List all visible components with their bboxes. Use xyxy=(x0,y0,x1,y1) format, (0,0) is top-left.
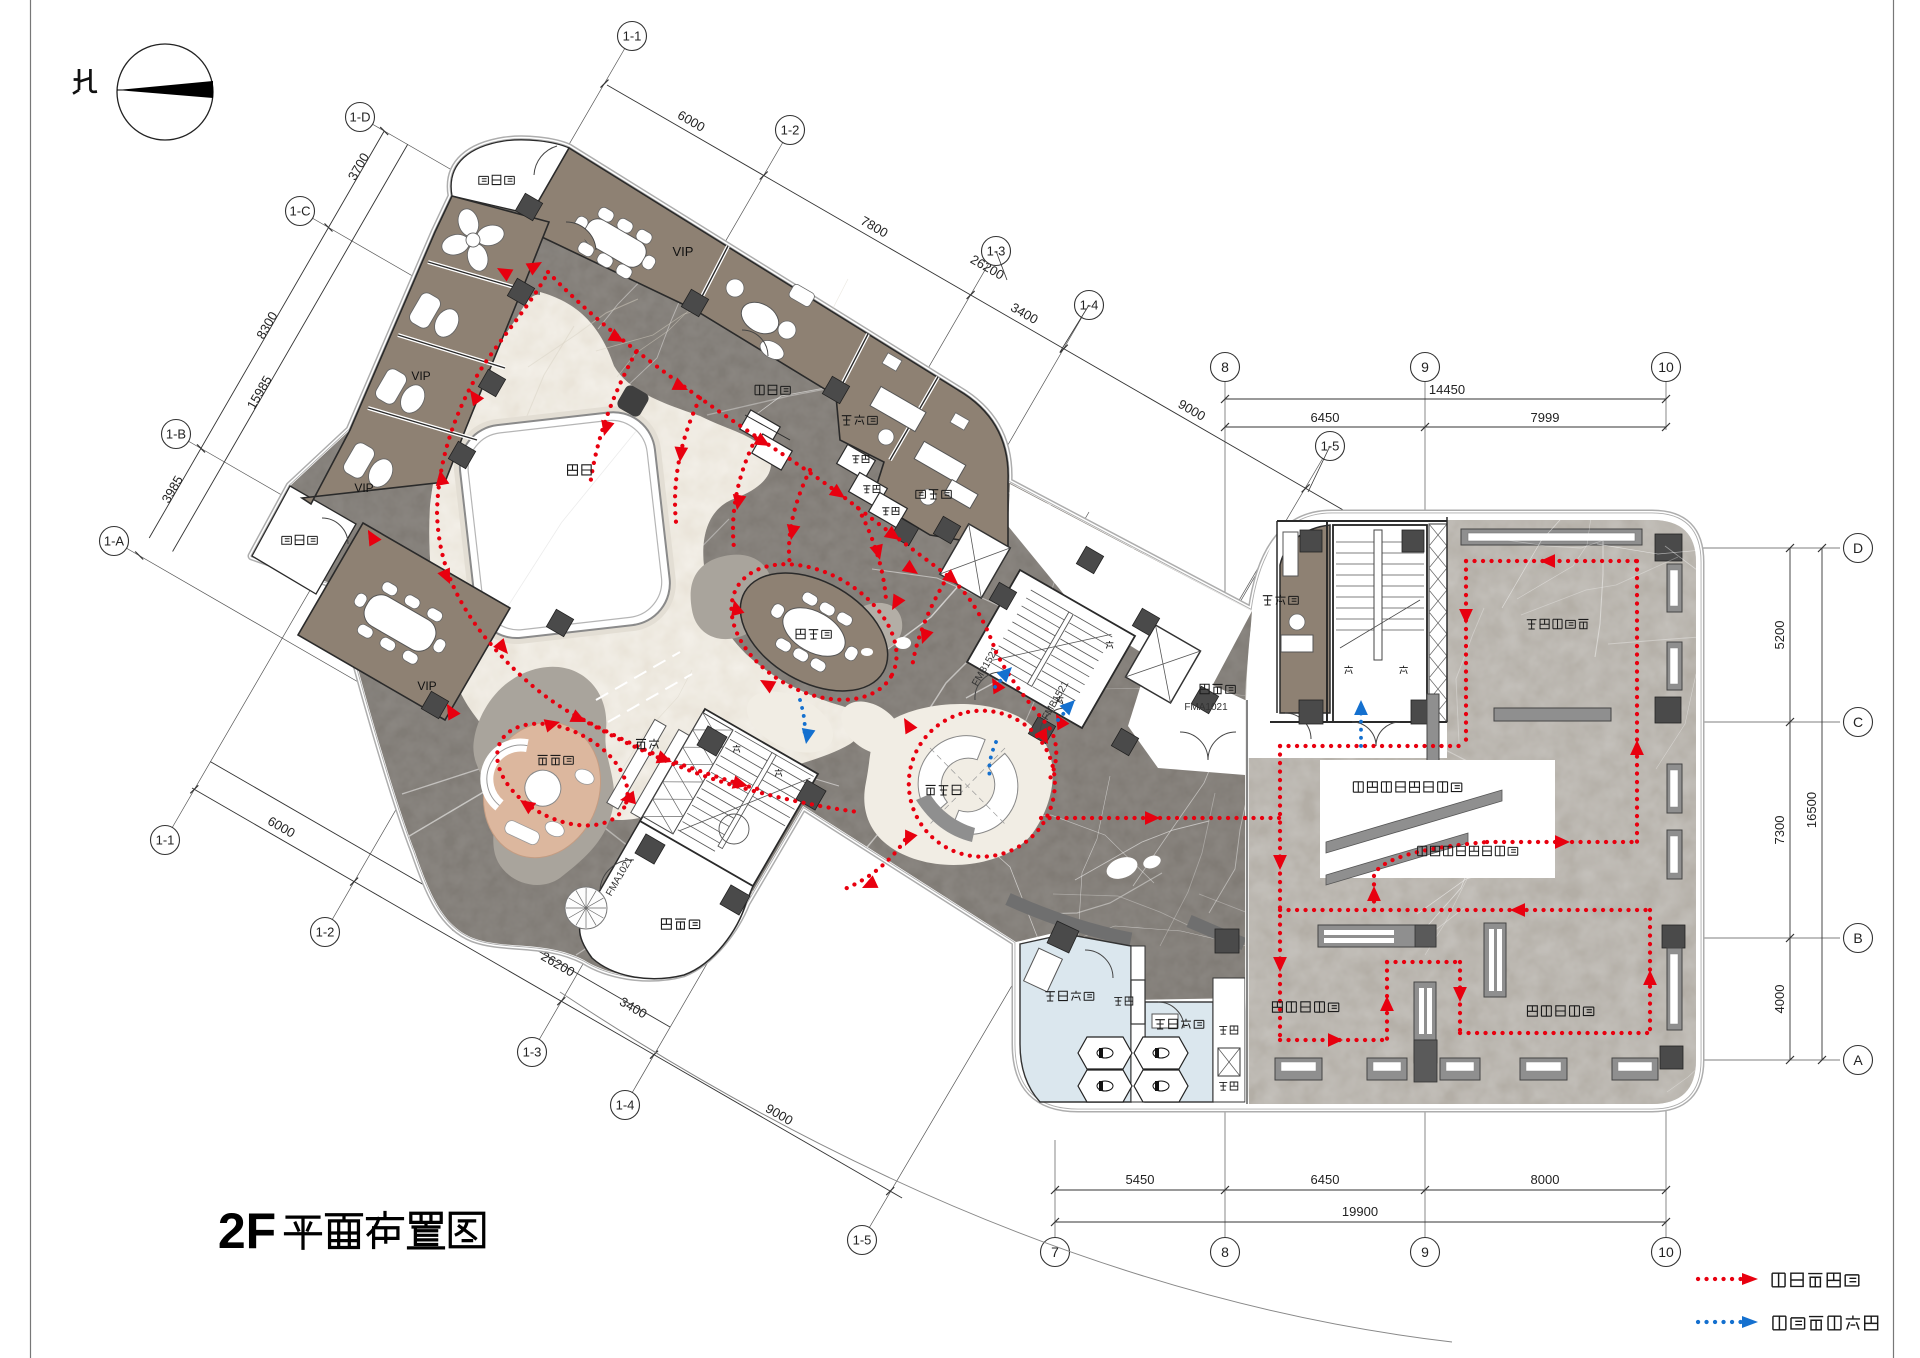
svg-text:1-1: 1-1 xyxy=(156,833,175,848)
svg-text:5200: 5200 xyxy=(1772,621,1787,650)
svg-text:4000: 4000 xyxy=(1772,985,1787,1014)
svg-text:1-D: 1-D xyxy=(350,110,371,125)
svg-text:1-B: 1-B xyxy=(166,427,186,442)
svg-text:16500: 16500 xyxy=(1804,792,1819,828)
svg-text:2F: 2F xyxy=(218,1203,276,1259)
svg-text:VIP: VIP xyxy=(673,244,694,259)
svg-text:1-2: 1-2 xyxy=(316,925,335,940)
svg-text:VIP: VIP xyxy=(354,481,373,495)
svg-text:8: 8 xyxy=(1221,1244,1229,1260)
svg-text:FMA1021: FMA1021 xyxy=(1184,702,1228,713)
svg-text:9: 9 xyxy=(1421,1244,1429,1260)
svg-text:B: B xyxy=(1853,930,1862,946)
svg-text:VIP: VIP xyxy=(411,369,430,383)
svg-text:8000: 8000 xyxy=(1531,1172,1560,1187)
svg-text:1-3: 1-3 xyxy=(523,1045,542,1060)
svg-text:9: 9 xyxy=(1421,359,1429,375)
svg-text:1-5: 1-5 xyxy=(853,1233,872,1248)
svg-text:1-A: 1-A xyxy=(104,534,125,549)
svg-text:1-C: 1-C xyxy=(290,204,311,219)
svg-text:6450: 6450 xyxy=(1311,410,1340,425)
svg-text:6450: 6450 xyxy=(1311,1172,1340,1187)
svg-text:10: 10 xyxy=(1658,1244,1674,1260)
svg-text:1-4: 1-4 xyxy=(616,1098,635,1113)
svg-text:5450: 5450 xyxy=(1126,1172,1155,1187)
svg-text:A: A xyxy=(1853,1052,1863,1068)
svg-text:VIP: VIP xyxy=(417,679,436,693)
svg-text:19900: 19900 xyxy=(1342,1204,1378,1219)
svg-text:D: D xyxy=(1853,540,1863,556)
svg-text:7300: 7300 xyxy=(1772,816,1787,845)
svg-text:7999: 7999 xyxy=(1531,410,1560,425)
svg-text:C: C xyxy=(1853,714,1863,730)
svg-text:8: 8 xyxy=(1221,359,1229,375)
svg-text:10: 10 xyxy=(1658,359,1674,375)
svg-text:1-1: 1-1 xyxy=(623,29,642,44)
svg-text:14450: 14450 xyxy=(1429,382,1465,397)
svg-text:1-2: 1-2 xyxy=(781,123,800,138)
